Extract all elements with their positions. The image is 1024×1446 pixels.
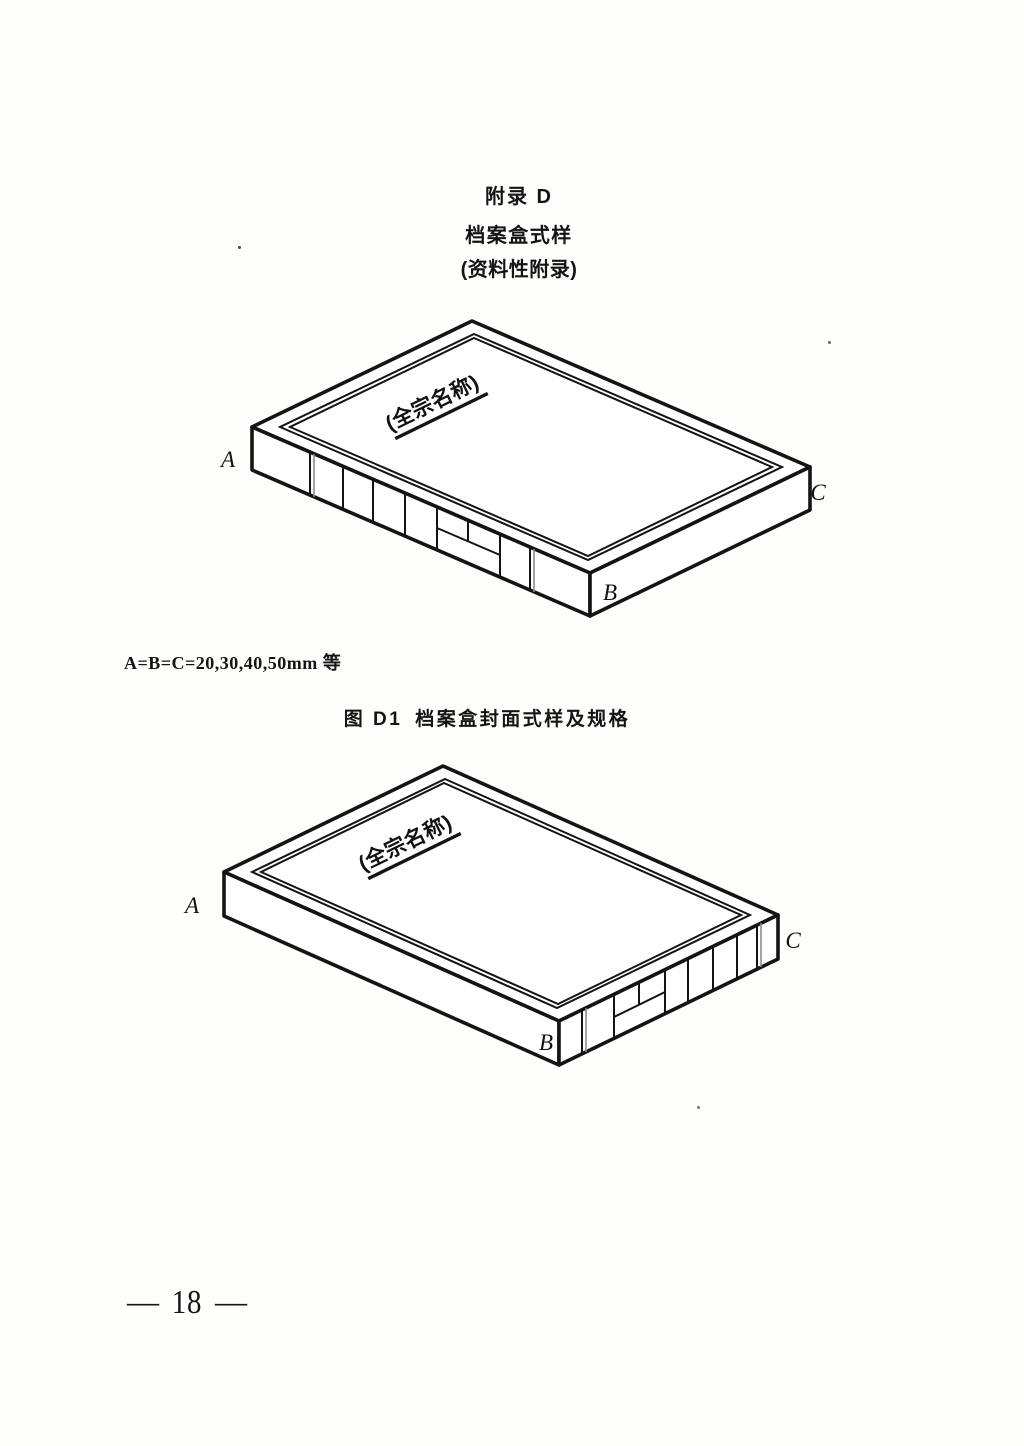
dimension-label-c: C	[810, 480, 826, 505]
dimension-label-c: C	[785, 928, 801, 953]
footer-dash-left: —	[127, 1285, 159, 1317]
page-footer: — 18 —	[127, 1284, 247, 1322]
dimension-label-b: B	[539, 1030, 553, 1055]
scan-speck	[238, 246, 241, 249]
dimension-label-a: A	[183, 893, 200, 918]
appendix-title: 附录 D	[485, 180, 553, 209]
scan-speck	[697, 1106, 700, 1109]
figure-caption-number: 图 D1	[344, 704, 403, 731]
figure-caption-text: 档案盒封面式样及规格	[415, 704, 630, 731]
dimension-label-b: B	[603, 580, 617, 605]
figure-d1-upper-drawing: (全宗名称) A B C	[200, 295, 840, 640]
box-faces	[224, 766, 778, 1065]
scan-speck	[828, 341, 831, 344]
figure-d1-lower-drawing: (全宗名称) A B C	[170, 745, 830, 1105]
dimension-label-a: A	[219, 447, 236, 472]
appendix-subtitle: 档案盒式样	[465, 219, 573, 248]
footer-dash-right: —	[215, 1285, 247, 1317]
appendix-note: (资料性附录)	[461, 253, 578, 282]
document-page: 附录 D 档案盒式样 (资料性附录)	[0, 0, 1024, 1446]
dimension-note: A=B=C=20,30,40,50mm 等	[124, 649, 341, 675]
figure-caption: 图 D1 档案盒封面式样及规格	[344, 704, 631, 731]
page-number: 18	[172, 1284, 203, 1322]
